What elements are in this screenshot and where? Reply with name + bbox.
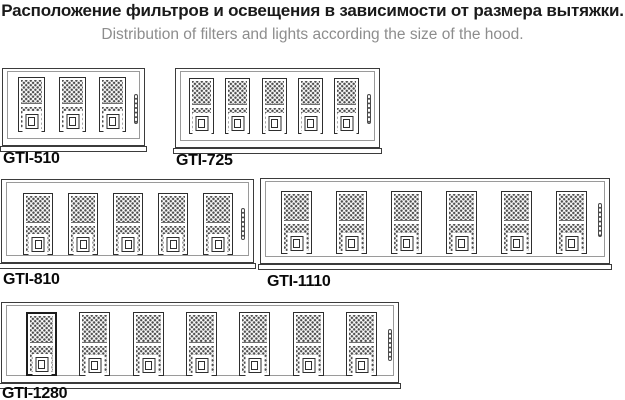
filter-handle-grip: [271, 119, 278, 128]
filter-handle: [510, 236, 523, 251]
filter-handle-grip: [343, 119, 350, 128]
filter-handle-grip: [458, 239, 465, 248]
grease-filter: [391, 191, 422, 254]
filter-handle: [290, 236, 303, 251]
filter-handle: [248, 358, 261, 373]
grease-filter: [501, 191, 532, 254]
filter-handle: [345, 236, 358, 251]
grease-filter: [23, 193, 53, 255]
filter-handle-grip: [358, 361, 365, 370]
filter-mesh-top: [189, 315, 214, 343]
filter-handle-grip: [28, 117, 35, 126]
grease-filter: [113, 193, 143, 255]
filter-handle: [122, 237, 135, 252]
filter-mesh-top: [82, 315, 107, 343]
filter-handle-grip: [69, 117, 76, 126]
filter-mesh-top: [116, 196, 140, 223]
grease-filter: [262, 78, 287, 134]
filter-mesh-top: [71, 196, 95, 223]
grease-filter: [186, 312, 217, 376]
filter-handle: [212, 237, 225, 252]
filter-handle-grip: [251, 361, 258, 370]
filter-handle: [32, 237, 45, 252]
grease-filter: [556, 191, 587, 254]
filter-handle: [35, 357, 48, 372]
title-russian: Расположение фильтров и освещения в зави…: [0, 1, 625, 21]
filter-handle-grip: [109, 117, 116, 126]
hood-gti-1110: [260, 178, 610, 264]
grease-filter: [99, 77, 126, 132]
filter-handle-grip: [215, 240, 222, 249]
grease-filter: [336, 191, 367, 254]
filter-handle: [88, 358, 101, 373]
filter-handle-grip: [568, 239, 575, 248]
filter-handle-grip: [293, 239, 300, 248]
title-english: Distribution of filters and lights accor…: [0, 26, 625, 44]
grease-filter: [239, 312, 270, 376]
grease-filter: [446, 191, 477, 254]
filter-handle-grip: [80, 240, 87, 249]
grease-filter: [293, 312, 324, 376]
filter-handle-grip: [38, 360, 45, 369]
filter-mesh-top: [394, 194, 419, 221]
filter-handle-grip: [513, 239, 520, 248]
filter-mesh-top: [242, 315, 267, 343]
filter-mesh-top: [339, 194, 364, 221]
filter-mesh-top: [26, 196, 50, 223]
grease-filter: [203, 193, 233, 255]
hood-inner-frame: [265, 181, 605, 257]
filter-mesh-top: [301, 81, 320, 105]
hood-bottom-lip: [0, 263, 256, 269]
light-strip: [367, 94, 371, 124]
filter-mesh-top: [449, 194, 474, 221]
filter-handle: [25, 114, 38, 129]
filter-handle-grip: [198, 119, 205, 128]
filter-handle-grip: [145, 361, 152, 370]
filter-mesh-top: [337, 81, 356, 105]
grease-filter: [346, 312, 377, 376]
filter-mesh-top: [136, 315, 161, 343]
hood-label-gti-810: GTI-810: [3, 271, 60, 289]
filter-handle: [455, 236, 468, 251]
filter-handle: [106, 114, 119, 129]
filter-mesh-top: [62, 80, 83, 104]
grease-filter: [26, 312, 57, 376]
filter-handle-grip: [170, 240, 177, 249]
filter-handle: [195, 358, 208, 373]
grease-filter: [281, 191, 312, 254]
filter-mesh-top: [284, 194, 309, 221]
filter-handle-grip: [91, 361, 98, 370]
filter-handle-grip: [305, 361, 312, 370]
filter-handle: [565, 236, 578, 251]
filter-mesh-top: [21, 80, 42, 104]
filter-handle: [195, 116, 208, 131]
filter-mesh-top: [30, 316, 53, 343]
hood-label-gti-510: GTI-510: [3, 150, 60, 168]
filter-handle: [355, 358, 368, 373]
filter-handle-grip: [348, 239, 355, 248]
light-strip: [134, 94, 138, 124]
hood-gti-1280: [1, 302, 399, 383]
hood-bottom-lip: [258, 264, 612, 270]
hood-label-gti-1280: GTI-1280: [2, 385, 67, 400]
filter-mesh-top: [206, 196, 230, 223]
filter-handle: [340, 116, 353, 131]
grease-filter: [189, 78, 214, 134]
grease-filter: [133, 312, 164, 376]
filter-handle: [400, 236, 413, 251]
filter-handle: [231, 116, 244, 131]
diagram-canvas: Расположение фильтров и освещения в зави…: [0, 0, 625, 400]
light-strip: [241, 208, 245, 240]
filter-mesh-top: [504, 194, 529, 221]
grease-filter: [334, 78, 359, 134]
filter-handle-grip: [125, 240, 132, 249]
filter-mesh-top: [265, 81, 284, 105]
filter-handle: [167, 237, 180, 252]
hood-label-gti-725: GTI-725: [176, 152, 233, 170]
filter-mesh-top: [161, 196, 185, 223]
filter-handle: [302, 358, 315, 373]
grease-filter: [18, 77, 45, 132]
grease-filter: [158, 193, 188, 255]
light-strip: [598, 203, 602, 237]
hood-label-gti-1110: GTI-1110: [267, 273, 330, 291]
filter-mesh-top: [102, 80, 123, 104]
filter-mesh-top: [192, 81, 211, 105]
filter-handle-grip: [403, 239, 410, 248]
filter-handle: [66, 114, 79, 129]
filter-handle: [77, 237, 90, 252]
filter-handle-grip: [198, 361, 205, 370]
grease-filter: [68, 193, 98, 255]
filter-handle: [142, 358, 155, 373]
filter-handle-grip: [35, 240, 42, 249]
hood-gti-725: [175, 68, 380, 148]
filter-mesh-top: [228, 81, 247, 105]
grease-filter: [59, 77, 86, 132]
hood-gti-510: [2, 68, 145, 146]
light-strip: [388, 329, 392, 361]
filter-mesh-top: [559, 194, 584, 221]
filter-mesh-top: [296, 315, 321, 343]
filter-mesh-top: [349, 315, 374, 343]
filter-handle: [304, 116, 317, 131]
filter-handle-grip: [234, 119, 241, 128]
grease-filter: [298, 78, 323, 134]
grease-filter: [79, 312, 110, 376]
grease-filter: [225, 78, 250, 134]
filter-handle: [268, 116, 281, 131]
hood-gti-810: [1, 179, 254, 263]
filter-handle-grip: [307, 119, 314, 128]
